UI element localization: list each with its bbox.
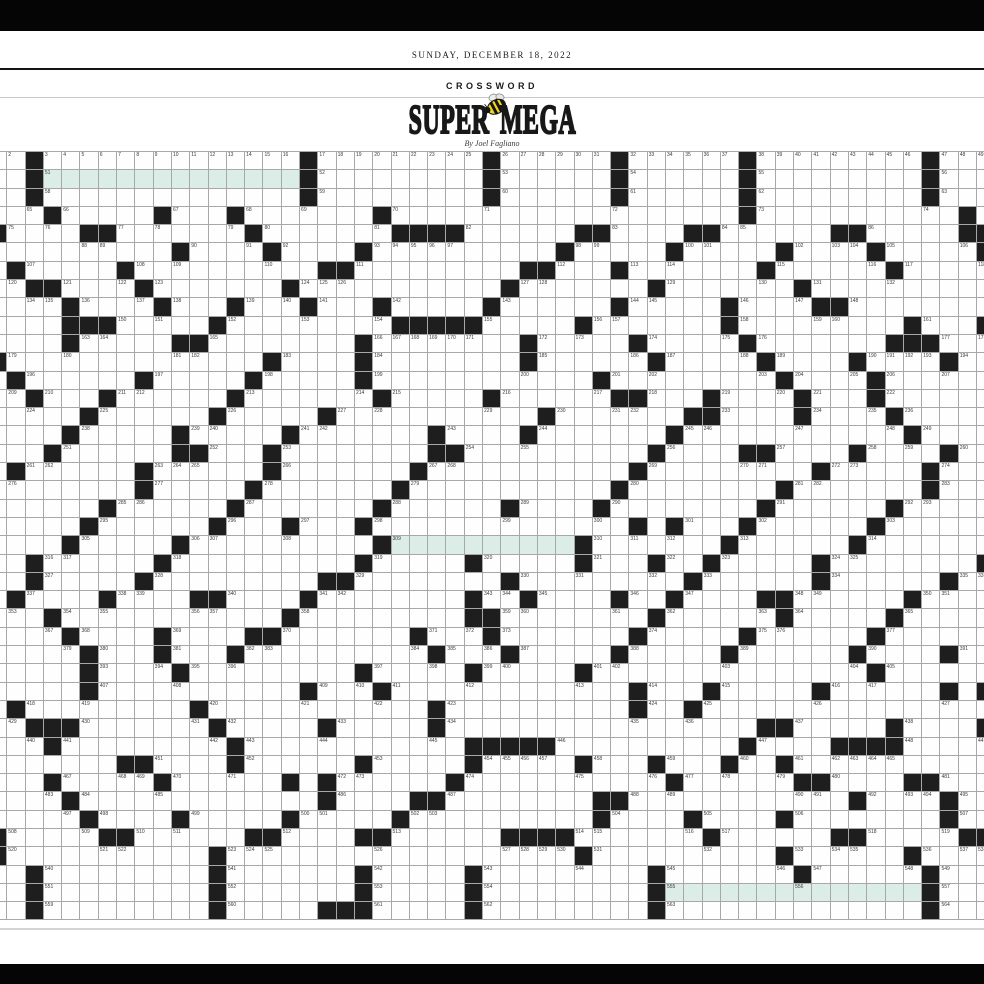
- grid-cell[interactable]: [117, 335, 134, 352]
- grid-cell[interactable]: [282, 335, 299, 352]
- grid-cell[interactable]: 291: [776, 500, 793, 517]
- grid-cell[interactable]: [703, 298, 720, 315]
- grid-cell[interactable]: [337, 390, 354, 407]
- grid-cell[interactable]: [867, 591, 884, 608]
- grid-cell[interactable]: 73: [757, 207, 774, 224]
- grid-cell[interactable]: 350: [922, 591, 939, 608]
- grid-cell[interactable]: [556, 225, 573, 242]
- grid-cell[interactable]: 461: [794, 756, 811, 773]
- grid-cell[interactable]: [227, 792, 244, 809]
- grid-cell[interactable]: [410, 847, 427, 864]
- grid-cell[interactable]: [520, 390, 537, 407]
- grid-cell[interactable]: [227, 555, 244, 572]
- grid-cell[interactable]: [611, 335, 628, 352]
- grid-cell[interactable]: [465, 500, 482, 517]
- grid-cell[interactable]: [922, 683, 939, 700]
- grid-cell[interactable]: 211: [117, 390, 134, 407]
- grid-cell[interactable]: [849, 609, 866, 626]
- grid-cell[interactable]: 149: [0, 317, 6, 334]
- grid-cell[interactable]: [922, 262, 939, 279]
- grid-cell[interactable]: [794, 189, 811, 206]
- grid-cell[interactable]: [684, 536, 701, 553]
- grid-cell[interactable]: 358: [300, 609, 317, 626]
- grid-cell[interactable]: 562: [483, 902, 500, 919]
- grid-cell[interactable]: [794, 829, 811, 846]
- grid-cell[interactable]: 63: [940, 189, 957, 206]
- grid-cell[interactable]: [373, 445, 390, 462]
- grid-cell[interactable]: [282, 189, 299, 206]
- grid-cell[interactable]: [282, 738, 299, 755]
- grid-cell[interactable]: [922, 738, 939, 755]
- grid-cell[interactable]: 511: [172, 829, 189, 846]
- grid-cell[interactable]: [300, 719, 317, 736]
- grid-cell[interactable]: [739, 390, 756, 407]
- grid-cell[interactable]: 135: [44, 298, 61, 315]
- grid-cell[interactable]: [446, 518, 463, 535]
- grid-cell[interactable]: [465, 262, 482, 279]
- grid-cell[interactable]: 278: [263, 481, 280, 498]
- grid-cell[interactable]: [465, 243, 482, 260]
- grid-cell[interactable]: [867, 170, 884, 187]
- grid-cell[interactable]: [977, 884, 984, 901]
- grid-cell[interactable]: 488: [629, 792, 646, 809]
- grid-cell[interactable]: [776, 646, 793, 663]
- grid-cell[interactable]: [26, 829, 43, 846]
- grid-cell[interactable]: [428, 555, 445, 572]
- grid-cell[interactable]: [721, 481, 738, 498]
- highlight-cell[interactable]: [62, 170, 79, 187]
- grid-cell[interactable]: [666, 390, 683, 407]
- grid-cell[interactable]: 56: [940, 170, 957, 187]
- grid-cell[interactable]: [575, 463, 592, 480]
- grid-cell[interactable]: 407: [99, 683, 116, 700]
- grid-cell[interactable]: [7, 573, 24, 590]
- grid-cell[interactable]: [80, 463, 97, 480]
- grid-cell[interactable]: 40: [794, 152, 811, 169]
- grid-cell[interactable]: [648, 646, 665, 663]
- grid-cell[interactable]: [739, 701, 756, 718]
- grid-cell[interactable]: 431: [190, 719, 207, 736]
- grid-cell[interactable]: [263, 207, 280, 224]
- grid-cell[interactable]: [355, 591, 372, 608]
- grid-cell[interactable]: 396: [227, 664, 244, 681]
- grid-cell[interactable]: 113: [629, 262, 646, 279]
- grid-cell[interactable]: [575, 646, 592, 663]
- grid-cell[interactable]: [556, 555, 573, 572]
- grid-cell[interactable]: [7, 738, 24, 755]
- grid-cell[interactable]: [99, 481, 116, 498]
- grid-cell[interactable]: [44, 243, 61, 260]
- grid-cell[interactable]: [922, 719, 939, 736]
- grid-cell[interactable]: [556, 756, 573, 773]
- grid-cell[interactable]: [318, 335, 335, 352]
- grid-cell[interactable]: 527: [501, 847, 518, 864]
- grid-cell[interactable]: 533: [794, 847, 811, 864]
- grid-cell[interactable]: [959, 774, 976, 791]
- grid-cell[interactable]: [629, 902, 646, 919]
- grid-cell[interactable]: [959, 536, 976, 553]
- grid-cell[interactable]: 42: [831, 152, 848, 169]
- grid-cell[interactable]: [154, 609, 171, 626]
- grid-cell[interactable]: 314: [867, 536, 884, 553]
- grid-cell[interactable]: [62, 756, 79, 773]
- grid-cell[interactable]: [80, 847, 97, 864]
- grid-cell[interactable]: 553: [373, 884, 390, 901]
- grid-cell[interactable]: [538, 463, 555, 480]
- grid-cell[interactable]: 465: [886, 756, 903, 773]
- grid-cell[interactable]: [922, 225, 939, 242]
- grid-cell[interactable]: [373, 591, 390, 608]
- grid-cell[interactable]: [26, 756, 43, 773]
- grid-cell[interactable]: [245, 866, 262, 883]
- grid-cell[interactable]: [318, 445, 335, 462]
- grid-cell[interactable]: 492: [867, 792, 884, 809]
- grid-cell[interactable]: 331: [575, 573, 592, 590]
- grid-cell[interactable]: [611, 719, 628, 736]
- grid-cell[interactable]: 250: [0, 445, 6, 462]
- grid-cell[interactable]: [62, 683, 79, 700]
- grid-cell[interactable]: [392, 280, 409, 297]
- grid-cell[interactable]: 136: [80, 298, 97, 315]
- grid-cell[interactable]: 366: [0, 628, 6, 645]
- grid-cell[interactable]: [812, 902, 829, 919]
- grid-cell[interactable]: 4: [62, 152, 79, 169]
- grid-cell[interactable]: [190, 884, 207, 901]
- grid-cell[interactable]: [483, 573, 500, 590]
- grid-cell[interactable]: [300, 536, 317, 553]
- grid-cell[interactable]: [117, 683, 134, 700]
- grid-cell[interactable]: 2: [7, 152, 24, 169]
- grid-cell[interactable]: [117, 518, 134, 535]
- grid-cell[interactable]: [666, 372, 683, 389]
- grid-cell[interactable]: [904, 555, 921, 572]
- grid-cell[interactable]: [172, 408, 189, 425]
- grid-cell[interactable]: [209, 756, 226, 773]
- grid-cell[interactable]: [593, 591, 610, 608]
- grid-cell[interactable]: 517: [721, 829, 738, 846]
- highlight-cell[interactable]: [209, 170, 226, 187]
- grid-cell[interactable]: [337, 646, 354, 663]
- grid-cell[interactable]: [7, 243, 24, 260]
- grid-cell[interactable]: 325: [849, 555, 866, 572]
- grid-cell[interactable]: [26, 518, 43, 535]
- grid-cell[interactable]: [904, 463, 921, 480]
- grid-cell[interactable]: [99, 298, 116, 315]
- grid-cell[interactable]: 261: [26, 463, 43, 480]
- grid-cell[interactable]: [190, 902, 207, 919]
- grid-cell[interactable]: [721, 372, 738, 389]
- grid-cell[interactable]: 23: [428, 152, 445, 169]
- grid-cell[interactable]: [776, 189, 793, 206]
- grid-cell[interactable]: [520, 719, 537, 736]
- grid-cell[interactable]: [977, 646, 984, 663]
- grid-cell[interactable]: [757, 536, 774, 553]
- grid-cell[interactable]: [392, 463, 409, 480]
- grid-cell[interactable]: 410: [355, 683, 372, 700]
- grid-cell[interactable]: [831, 170, 848, 187]
- grid-cell[interactable]: [684, 170, 701, 187]
- grid-cell[interactable]: [428, 170, 445, 187]
- grid-cell[interactable]: [355, 609, 372, 626]
- grid-cell[interactable]: [209, 372, 226, 389]
- grid-cell[interactable]: [355, 792, 372, 809]
- grid-cell[interactable]: [629, 243, 646, 260]
- grid-cell[interactable]: [62, 189, 79, 206]
- grid-cell[interactable]: [593, 884, 610, 901]
- grid-cell[interactable]: [703, 646, 720, 663]
- grid-cell[interactable]: [812, 664, 829, 681]
- grid-cell[interactable]: [190, 683, 207, 700]
- grid-cell[interactable]: [483, 426, 500, 443]
- grid-cell[interactable]: [575, 481, 592, 498]
- highlight-cell[interactable]: [739, 884, 756, 901]
- grid-cell[interactable]: 499: [190, 811, 207, 828]
- grid-cell[interactable]: [446, 847, 463, 864]
- grid-cell[interactable]: [337, 628, 354, 645]
- grid-cell[interactable]: [977, 500, 984, 517]
- grid-cell[interactable]: [263, 536, 280, 553]
- grid-cell[interactable]: [556, 664, 573, 681]
- grid-cell[interactable]: 212: [135, 390, 152, 407]
- grid-cell[interactable]: 399: [483, 664, 500, 681]
- grid-cell[interactable]: [794, 445, 811, 462]
- grid-cell[interactable]: [209, 353, 226, 370]
- grid-cell[interactable]: 326: [0, 573, 6, 590]
- grid-cell[interactable]: 163: [80, 335, 97, 352]
- grid-cell[interactable]: 10: [172, 152, 189, 169]
- grid-cell[interactable]: [483, 262, 500, 279]
- grid-cell[interactable]: [227, 372, 244, 389]
- grid-cell[interactable]: [794, 353, 811, 370]
- grid-cell[interactable]: [209, 829, 226, 846]
- grid-cell[interactable]: 115: [776, 262, 793, 279]
- grid-cell[interactable]: 71: [483, 207, 500, 224]
- grid-cell[interactable]: [648, 262, 665, 279]
- grid-cell[interactable]: [812, 646, 829, 663]
- grid-cell[interactable]: [373, 738, 390, 755]
- grid-cell[interactable]: [410, 500, 427, 517]
- grid-cell[interactable]: [392, 262, 409, 279]
- grid-cell[interactable]: [446, 628, 463, 645]
- grid-cell[interactable]: [410, 756, 427, 773]
- grid-cell[interactable]: [392, 902, 409, 919]
- grid-cell[interactable]: [44, 536, 61, 553]
- grid-cell[interactable]: [282, 664, 299, 681]
- grid-cell[interactable]: [520, 664, 537, 681]
- grid-cell[interactable]: [263, 189, 280, 206]
- grid-cell[interactable]: 16: [282, 152, 299, 169]
- highlight-cell[interactable]: [80, 170, 97, 187]
- grid-cell[interactable]: [739, 408, 756, 425]
- grid-cell[interactable]: [410, 426, 427, 443]
- grid-cell[interactable]: [483, 518, 500, 535]
- grid-cell[interactable]: [721, 243, 738, 260]
- grid-cell[interactable]: [337, 811, 354, 828]
- grid-cell[interactable]: 59: [318, 189, 335, 206]
- grid-cell[interactable]: 452: [245, 756, 262, 773]
- grid-cell[interactable]: [44, 408, 61, 425]
- grid-cell[interactable]: [556, 518, 573, 535]
- grid-cell[interactable]: [410, 189, 427, 206]
- grid-cell[interactable]: [831, 792, 848, 809]
- grid-cell[interactable]: 12: [209, 152, 226, 169]
- grid-cell[interactable]: 518: [867, 829, 884, 846]
- grid-cell[interactable]: [428, 573, 445, 590]
- grid-cell[interactable]: 322: [666, 555, 683, 572]
- grid-cell[interactable]: [684, 609, 701, 626]
- grid-cell[interactable]: 144: [629, 298, 646, 315]
- grid-cell[interactable]: [648, 792, 665, 809]
- grid-cell[interactable]: [867, 317, 884, 334]
- grid-cell[interactable]: [684, 463, 701, 480]
- grid-cell[interactable]: [501, 207, 518, 224]
- grid-cell[interactable]: [446, 884, 463, 901]
- grid-cell[interactable]: [282, 573, 299, 590]
- grid-cell[interactable]: [282, 646, 299, 663]
- grid-cell[interactable]: [556, 463, 573, 480]
- grid-cell[interactable]: 178: [977, 335, 984, 352]
- grid-cell[interactable]: 108: [135, 262, 152, 279]
- grid-cell[interactable]: [172, 189, 189, 206]
- grid-cell[interactable]: 30: [575, 152, 592, 169]
- grid-cell[interactable]: 439: [0, 738, 6, 755]
- grid-cell[interactable]: 508: [7, 829, 24, 846]
- highlight-cell[interactable]: [703, 884, 720, 901]
- grid-cell[interactable]: 242: [318, 426, 335, 443]
- grid-cell[interactable]: [959, 701, 976, 718]
- grid-cell[interactable]: 446: [556, 738, 573, 755]
- grid-cell[interactable]: [757, 847, 774, 864]
- grid-cell[interactable]: [209, 628, 226, 645]
- grid-cell[interactable]: 49: [977, 152, 984, 169]
- grid-cell[interactable]: 304: [0, 536, 6, 553]
- grid-cell[interactable]: [904, 225, 921, 242]
- grid-cell[interactable]: [721, 426, 738, 443]
- grid-cell[interactable]: 539: [0, 866, 6, 883]
- grid-cell[interactable]: [757, 243, 774, 260]
- grid-cell[interactable]: 162: [0, 335, 6, 352]
- grid-cell[interactable]: [648, 243, 665, 260]
- grid-cell[interactable]: [556, 353, 573, 370]
- grid-cell[interactable]: 86: [867, 225, 884, 242]
- grid-cell[interactable]: [62, 500, 79, 517]
- grid-cell[interactable]: 134: [26, 298, 43, 315]
- grid-cell[interactable]: 216: [501, 390, 518, 407]
- grid-cell[interactable]: 58: [44, 189, 61, 206]
- grid-cell[interactable]: [757, 481, 774, 498]
- grid-cell[interactable]: [410, 829, 427, 846]
- grid-cell[interactable]: [538, 792, 555, 809]
- grid-cell[interactable]: [190, 207, 207, 224]
- grid-cell[interactable]: [629, 829, 646, 846]
- grid-cell[interactable]: [556, 390, 573, 407]
- highlight-cell[interactable]: [776, 884, 793, 901]
- grid-cell[interactable]: [337, 536, 354, 553]
- grid-cell[interactable]: [794, 701, 811, 718]
- grid-cell[interactable]: [428, 866, 445, 883]
- highlight-cell[interactable]: [867, 884, 884, 901]
- grid-cell[interactable]: [629, 372, 646, 389]
- grid-cell[interactable]: 46: [904, 152, 921, 169]
- grid-cell[interactable]: 19: [355, 152, 372, 169]
- grid-cell[interactable]: [703, 317, 720, 334]
- grid-cell[interactable]: [611, 518, 628, 535]
- grid-cell[interactable]: 194: [959, 353, 976, 370]
- grid-cell[interactable]: [849, 774, 866, 791]
- grid-cell[interactable]: [886, 811, 903, 828]
- grid-cell[interactable]: [154, 445, 171, 462]
- grid-cell[interactable]: [282, 555, 299, 572]
- grid-cell[interactable]: [172, 719, 189, 736]
- grid-cell[interactable]: [922, 390, 939, 407]
- grid-cell[interactable]: 146: [739, 298, 756, 315]
- grid-cell[interactable]: [117, 353, 134, 370]
- grid-cell[interactable]: [483, 243, 500, 260]
- grid-cell[interactable]: [940, 536, 957, 553]
- grid-cell[interactable]: [26, 646, 43, 663]
- grid-cell[interactable]: [575, 701, 592, 718]
- grid-cell[interactable]: [465, 408, 482, 425]
- grid-cell[interactable]: [392, 701, 409, 718]
- grid-cell[interactable]: [556, 628, 573, 645]
- grid-cell[interactable]: 375: [757, 628, 774, 645]
- grid-cell[interactable]: [337, 518, 354, 535]
- grid-cell[interactable]: [886, 225, 903, 242]
- grid-cell[interactable]: 514: [575, 829, 592, 846]
- grid-cell[interactable]: [7, 811, 24, 828]
- grid-cell[interactable]: [757, 555, 774, 572]
- grid-cell[interactable]: 222: [886, 390, 903, 407]
- grid-cell[interactable]: [428, 902, 445, 919]
- grid-cell[interactable]: 199: [373, 372, 390, 389]
- grid-cell[interactable]: [190, 225, 207, 242]
- grid-cell[interactable]: 536: [922, 847, 939, 864]
- grid-cell[interactable]: [392, 628, 409, 645]
- grid-cell[interactable]: [501, 866, 518, 883]
- grid-cell[interactable]: [556, 317, 573, 334]
- grid-cell[interactable]: [721, 738, 738, 755]
- grid-cell[interactable]: [44, 829, 61, 846]
- grid-cell[interactable]: 323: [721, 555, 738, 572]
- grid-cell[interactable]: [611, 280, 628, 297]
- highlight-cell[interactable]: [812, 884, 829, 901]
- grid-cell[interactable]: [501, 225, 518, 242]
- grid-cell[interactable]: [867, 811, 884, 828]
- grid-cell[interactable]: [959, 628, 976, 645]
- grid-cell[interactable]: [886, 701, 903, 718]
- grid-cell[interactable]: 485: [154, 792, 171, 809]
- grid-cell[interactable]: [135, 243, 152, 260]
- grid-cell[interactable]: [7, 536, 24, 553]
- grid-cell[interactable]: [135, 646, 152, 663]
- grid-cell[interactable]: 109: [172, 262, 189, 279]
- grid-cell[interactable]: [373, 811, 390, 828]
- grid-cell[interactable]: [611, 243, 628, 260]
- grid-cell[interactable]: [7, 445, 24, 462]
- grid-cell[interactable]: [812, 536, 829, 553]
- grid-cell[interactable]: [922, 628, 939, 645]
- grid-cell[interactable]: [245, 591, 262, 608]
- grid-cell[interactable]: [355, 628, 372, 645]
- grid-cell[interactable]: [575, 500, 592, 517]
- grid-cell[interactable]: [940, 426, 957, 443]
- highlight-cell[interactable]: [227, 170, 244, 187]
- grid-cell[interactable]: [245, 536, 262, 553]
- grid-cell[interactable]: 60: [501, 189, 518, 206]
- grid-cell[interactable]: 549: [940, 866, 957, 883]
- grid-cell[interactable]: [629, 811, 646, 828]
- grid-cell[interactable]: [392, 426, 409, 443]
